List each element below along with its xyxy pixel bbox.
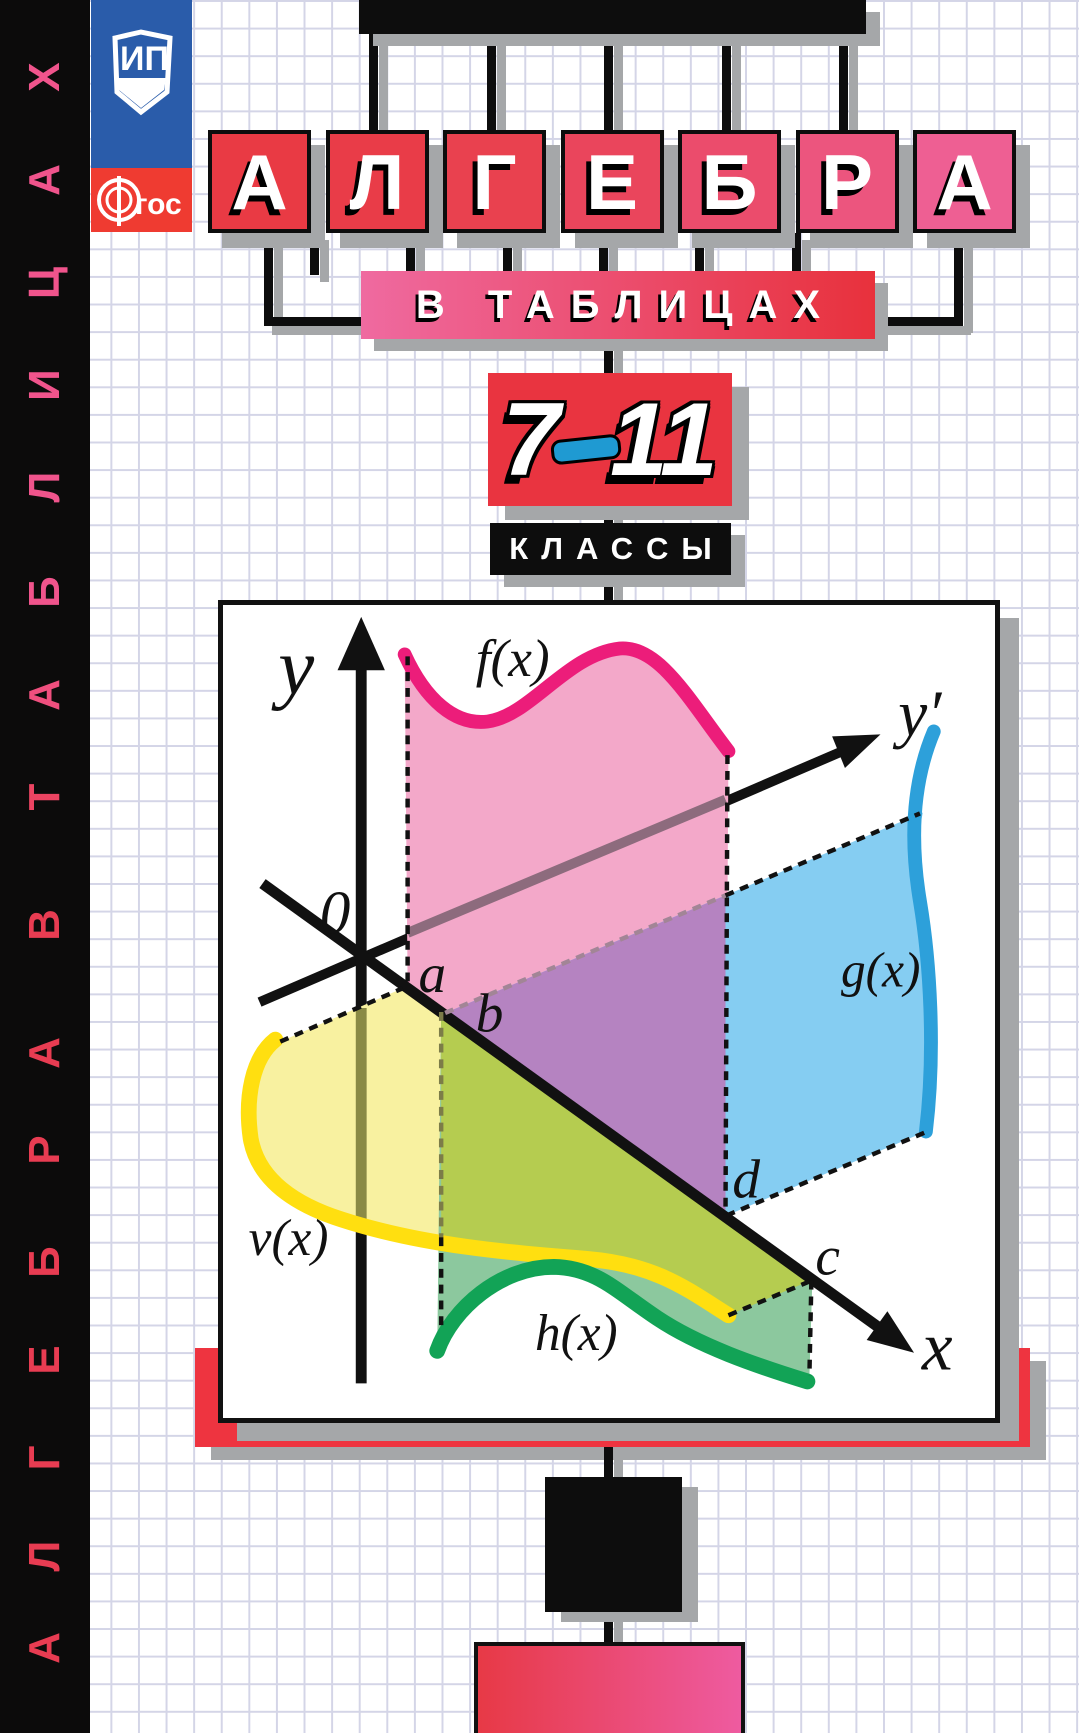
label-y-prime: y′ <box>892 678 943 750</box>
label-curve-g: g(x) <box>841 942 920 997</box>
title-letter-tile: Е <box>561 130 664 233</box>
spine-letter: В <box>22 880 68 970</box>
spine-letter: А <box>22 1603 68 1693</box>
top-hanger-bar <box>359 0 866 34</box>
y-axis-arrow-icon <box>338 617 385 670</box>
grade-from: 7 <box>502 388 560 492</box>
spine-letter: Е <box>22 1315 68 1405</box>
spine-letter: Б <box>22 547 68 637</box>
title-letter-tile: Л <box>326 130 429 233</box>
label-a: a <box>418 943 446 1004</box>
spine-letter: Р <box>22 1105 68 1195</box>
title-letter: Б <box>701 143 757 221</box>
hanger-rod-mid <box>310 233 319 275</box>
grades-badge: 7 11 <box>488 373 732 506</box>
rod-bar-to-square <box>604 1447 613 1481</box>
spine-letter: Л <box>22 1511 68 1601</box>
bracket-right-horizontal <box>872 317 963 326</box>
hanger-rod <box>487 34 496 134</box>
title-letter: А <box>936 143 992 221</box>
left-spine-strip: ХАЦИЛБАТВАРБЕГЛА <box>0 0 90 1733</box>
label-b: b <box>476 983 504 1044</box>
spine-letter: Б <box>22 1217 68 1307</box>
title-letter-tile: А <box>913 130 1016 233</box>
publisher-logo: ИП <box>91 0 192 168</box>
spine-letter: А <box>22 650 68 740</box>
hanger-rod-mid <box>406 233 415 275</box>
hanger-rod-mid <box>503 233 512 275</box>
title-letter: Е <box>586 143 638 221</box>
spine-letter: Х <box>22 32 68 122</box>
label-d: d <box>732 1149 760 1210</box>
spine-letter: Л <box>22 442 68 532</box>
fgos-text: гос <box>135 188 182 221</box>
label-y-axis: y <box>271 622 314 712</box>
spine-letter: Ц <box>22 238 68 328</box>
classes-banner: КЛАССЫ <box>490 523 731 575</box>
rod-square-to-pink <box>604 1612 613 1646</box>
title-letter-tile: Г <box>443 130 546 233</box>
hanger-rod-mid <box>792 233 801 275</box>
title-letter: А <box>231 143 287 221</box>
fgos-circle-icon <box>99 176 139 226</box>
diagram-panel: y f(x) y′ 0 a b g(x) v(x) d c h(x) x <box>218 600 1000 1423</box>
title-letter-tile: Б <box>678 130 781 233</box>
title-letter: Г <box>472 143 516 221</box>
hanger-rod-mid <box>599 233 608 275</box>
bracket-right-vertical <box>954 233 963 326</box>
calculus-diagram: y f(x) y′ 0 a b g(x) v(x) d c h(x) x <box>223 605 995 1418</box>
hanger-rod <box>839 34 848 134</box>
bottom-pink-rect <box>474 1642 745 1733</box>
bracket-left-horizontal <box>264 317 364 326</box>
bracket-left-vertical <box>264 233 273 326</box>
spine-letter: А <box>22 1008 68 1098</box>
hanger-rod-mid <box>695 233 704 275</box>
label-curve-v: v(x) <box>249 1210 329 1267</box>
spine-letter: И <box>22 340 68 430</box>
hanger-rod <box>369 34 378 134</box>
title-letter: Р <box>821 143 873 221</box>
hanger-rod <box>604 34 613 134</box>
title-letter-tile: А <box>208 130 311 233</box>
fgos-logo: гос <box>91 168 192 232</box>
title-letter: Л <box>350 143 405 221</box>
subtitle-text: В ТАБЛИЦАХ <box>400 283 836 328</box>
spine-letter: А <box>22 135 68 225</box>
label-origin: 0 <box>320 879 351 947</box>
classes-text: КЛАССЫ <box>496 531 724 567</box>
subtitle-banner: В ТАБЛИЦАХ <box>361 271 875 339</box>
hanger-rod <box>722 34 731 134</box>
grade-to: 11 <box>610 388 718 492</box>
spine-letter: Т <box>22 752 68 842</box>
label-x-axis: x <box>921 1308 953 1385</box>
bottom-black-square <box>545 1477 682 1612</box>
spine-letter: Г <box>22 1413 68 1503</box>
label-curve-f: f(x) <box>476 628 550 688</box>
publisher-initials: ИП <box>120 40 169 78</box>
book-shield-icon: ИП <box>115 32 170 112</box>
label-c: c <box>815 1226 840 1287</box>
y-prime-arrow-icon <box>832 734 880 768</box>
label-curve-h: h(x) <box>535 1305 618 1362</box>
title-letter-tile: Р <box>796 130 899 233</box>
